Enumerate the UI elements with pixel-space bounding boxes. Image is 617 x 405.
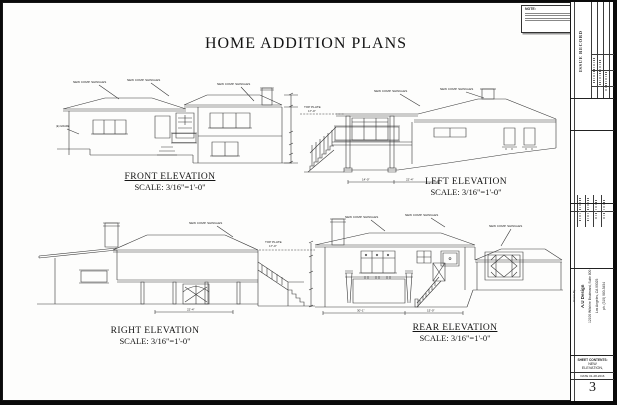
rear-elevation-scale: SCALE: 3/16"=1'-0" [375, 333, 535, 343]
micro-text [605, 72, 607, 92]
rear-elevation-drawing: NEW COMP. SHINGLES NEW COMP. SHINGLES NE… [305, 213, 567, 330]
table-line [609, 2, 610, 98]
left-elevation-caption: LEFT ELEVATION SCALE: 3/16"=1'-0" [386, 177, 546, 197]
note-heading: NOTE: [525, 7, 574, 11]
right-roof [39, 223, 258, 258]
front-elevation-caption: FRONT ELEVATION SCALE: 3/16"=1'-0" [90, 172, 250, 192]
dim-label: 30'-1" [357, 309, 365, 313]
roof-label: NEW COMP. SHINGLES [73, 80, 106, 84]
roof-label: NEW COMP. SHINGLES [345, 215, 378, 219]
note-text-line [525, 18, 574, 19]
dim-label: 14'-0" [362, 178, 370, 182]
top-plate-height: 17'-0" [308, 109, 316, 113]
micro-text [599, 60, 601, 88]
title-block: ISSUE RECORD Drawn B [570, 2, 613, 401]
roof-label: NEW COMP. SHINGLES [489, 224, 522, 228]
top-plate-height: 17'-0" [269, 244, 277, 248]
front-walls [57, 107, 292, 163]
front-entry [155, 113, 197, 155]
right-walls [37, 250, 315, 306]
rear-dimension-line [323, 311, 463, 315]
front-elevation-drawing: NEW COMP. SHINGLES NEW COMP. SHINGLES NE… [55, 76, 303, 176]
right-stairs [258, 262, 304, 306]
project-section: KNOTT PLACE San Diego, CA [571, 268, 614, 355]
rear-roof [315, 219, 562, 262]
roof-label: NEW COMP. SHINGLES [405, 213, 438, 217]
divider [571, 372, 614, 373]
roof-label: NEW COMP. SHINGLES [217, 82, 250, 86]
sheet-number: 3 [571, 381, 614, 395]
table-line [591, 54, 614, 55]
front-roof [63, 88, 282, 111]
roof-label: NEW COMP. SHINGLES [127, 78, 160, 82]
rear-center-windows [417, 251, 459, 266]
roof-label: NEW COMP. SHINGLES [440, 87, 473, 91]
left-leader-lines [400, 92, 484, 106]
rear-elevation-caption: REAR ELEVATION SCALE: 3/16"=1'-0" [375, 323, 535, 343]
rear-tick-line [309, 241, 313, 307]
firm-section: Drawn By A.U Design 12100 Wilshire Boule… [571, 130, 614, 203]
roof-label: NEW COMP. SHINGLES [374, 89, 407, 93]
dim-label: 15'-0" [427, 309, 435, 313]
right-elevation-title: RIGHT ELEVATION [75, 326, 235, 336]
dim-label: 22'-4" [187, 308, 195, 312]
rear-garage [345, 271, 413, 303]
left-windows [434, 128, 537, 150]
left-stairs [308, 127, 336, 172]
front-elevation-title: FRONT ELEVATION [90, 172, 250, 182]
page-title: HOME ADDITION PLANS [181, 35, 431, 53]
drawing-canvas: HOME ADDITION PLANS NOTE: [0, 0, 617, 405]
table-line [591, 86, 614, 87]
sheet-info-section: SHEET CONTENTS: NEW ELEVATION, DATE 01-2… [571, 355, 614, 401]
left-elevation-title: LEFT ELEVATION [386, 177, 546, 187]
front-leader-lines [67, 83, 254, 134]
rear-triple-window [359, 251, 397, 279]
revision-grid-section [571, 98, 614, 130]
note-text-line [525, 13, 574, 14]
left-elevation-scale: SCALE: 3/16"=1'-0" [386, 187, 546, 197]
rear-diamond-window [485, 252, 523, 280]
right-leader-line [217, 226, 233, 237]
left-roof [336, 89, 556, 122]
right-elevation-caption: RIGHT ELEVATION SCALE: 3/16"=1'-0" [75, 326, 235, 346]
micro-text [593, 58, 595, 84]
rear-elevation-title: REAR ELEVATION [375, 323, 535, 333]
sheet-date: DATE 01-28-2016 [571, 374, 614, 378]
front-steps [157, 147, 177, 155]
note-text-line [525, 15, 574, 16]
front-elevation-scale: SCALE: 3/16"=1'-0" [90, 182, 250, 192]
right-elevation-scale: SCALE: 3/16"=1'-0" [75, 336, 235, 346]
right-wing-railing [79, 270, 109, 283]
grade-label: (E) GRADE [56, 124, 70, 128]
front-windows [91, 113, 252, 156]
issue-record-label: ISSUE RECORD [578, 8, 583, 94]
right-elevation-drawing: NEW COMP. SHINGLES TOP PLATE 17'-0" 22'-… [25, 210, 317, 322]
left-porch [332, 116, 412, 172]
logo-section: A. U. DESIGN [571, 203, 614, 268]
issue-record-section: ISSUE RECORD [571, 2, 614, 98]
sheet-contents-line2: ELEVATION, [571, 366, 614, 370]
note-text-line [525, 20, 574, 21]
rear-stairs [415, 263, 445, 307]
front-dimension-line [284, 93, 298, 163]
roof-label: NEW COMP. SHINGLES [189, 221, 222, 225]
rear-leader-lines [371, 218, 511, 246]
